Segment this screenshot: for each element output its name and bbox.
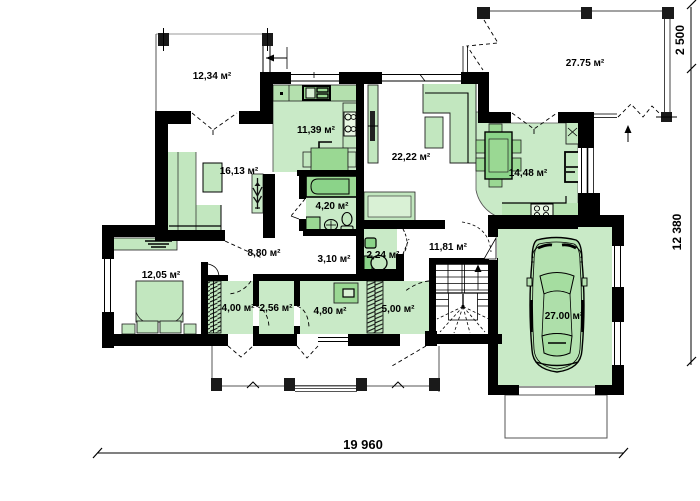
svg-text:2,56 м²: 2,56 м² (260, 303, 294, 314)
svg-text:2,24 м²: 2,24 м² (367, 250, 401, 261)
svg-text:4,20 м²: 4,20 м² (316, 201, 350, 212)
svg-text:5,00 м²: 5,00 м² (382, 304, 416, 315)
svg-text:8,80 м²: 8,80 м² (248, 248, 282, 259)
svg-text:2 500: 2 500 (673, 25, 687, 55)
svg-text:4,80 м²: 4,80 м² (314, 306, 348, 317)
svg-text:11,81 м²: 11,81 м² (429, 242, 468, 253)
svg-text:12 380: 12 380 (670, 213, 684, 250)
svg-text:27.00 м²: 27.00 м² (545, 311, 584, 322)
svg-text:14,48 м²: 14,48 м² (509, 168, 548, 179)
svg-text:3,10 м²: 3,10 м² (318, 254, 352, 265)
svg-text:12,34 м²: 12,34 м² (193, 71, 232, 82)
svg-text:16,13 м²: 16,13 м² (220, 166, 259, 177)
svg-text:22,22 м²: 22,22 м² (392, 152, 431, 163)
svg-text:27.75 м²: 27.75 м² (566, 58, 605, 69)
svg-text:11,39 м²: 11,39 м² (297, 125, 336, 136)
svg-text:4,00 м²: 4,00 м² (222, 303, 256, 314)
svg-text:19 960: 19 960 (343, 437, 383, 452)
svg-text:12,05 м²: 12,05 м² (142, 270, 181, 281)
